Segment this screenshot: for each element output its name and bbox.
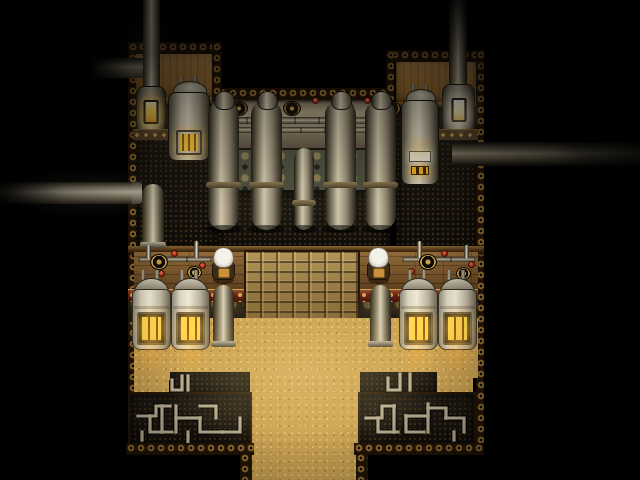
rivet-row-bottom-left — [126, 443, 254, 455]
valve-bench-left-3[interactable] — [199, 262, 206, 269]
distill-column-1 — [208, 100, 239, 230]
b-grill — [142, 317, 161, 340]
steam-pipe-exterior-right — [452, 142, 640, 166]
b-grill — [409, 317, 428, 340]
b-band — [401, 306, 436, 309]
capsule-under-tank-left — [142, 184, 164, 248]
boiler-3[interactable] — [399, 270, 438, 352]
b-band — [440, 306, 475, 309]
floor-pipe-left — [213, 285, 234, 347]
distill-column-3 — [325, 100, 356, 230]
furnace-top-left[interactable] — [136, 86, 166, 140]
boiler-fire-window — [404, 312, 433, 345]
pipe-rail-upper — [222, 117, 386, 124]
tank-top-left[interactable] — [168, 76, 210, 164]
bench-pipe-left-v2 — [194, 241, 199, 258]
furn-base — [133, 129, 169, 140]
npc-front — [218, 268, 230, 278]
steam-pipe-stub-top-left — [90, 58, 148, 78]
rivet-col-corridor-right — [356, 453, 368, 480]
boiler-4[interactable] — [438, 270, 477, 352]
col-head — [257, 91, 278, 110]
rivet-row-bottom-right — [354, 443, 484, 455]
b-band — [134, 306, 169, 309]
burner-left-1[interactable] — [150, 254, 168, 270]
valve-bench-right-1[interactable] — [441, 250, 448, 257]
burner-right-1[interactable] — [419, 254, 437, 270]
b-grill — [181, 317, 200, 340]
rivet-top-right-block — [390, 50, 484, 62]
col-head — [331, 91, 352, 110]
tank-amber-window — [176, 130, 203, 155]
tank-indicator-panel — [409, 151, 430, 162]
npc-worker-right[interactable] — [365, 247, 392, 284]
steam-pipe-exterior-left — [0, 182, 142, 204]
furn-base — [439, 129, 478, 140]
tank-indicator-lights — [411, 166, 429, 175]
col-head — [371, 91, 392, 110]
col-ring — [249, 182, 284, 188]
valve-bench-left-1[interactable] — [171, 250, 178, 257]
bench-pipe-left-v1 — [146, 245, 151, 259]
b-grill — [448, 317, 467, 340]
distill-column-short — [294, 148, 314, 230]
npc-worker-left[interactable] — [210, 247, 237, 284]
valve-wall-2[interactable] — [312, 97, 319, 104]
col-ring — [323, 182, 358, 188]
sand-corridor-bottom[interactable] — [248, 375, 360, 480]
boiler-fire-window — [137, 312, 166, 345]
crate-grid — [244, 250, 360, 323]
floor-pipe-right — [370, 285, 391, 347]
gauge-2[interactable] — [283, 101, 301, 116]
boiler-fire-window — [176, 312, 205, 345]
bench-pipe-right-v1 — [464, 245, 469, 259]
distill-column-4 — [365, 100, 396, 230]
game-viewport[interactable] — [0, 0, 640, 480]
boiler-fire-window — [443, 312, 472, 345]
col-head — [214, 91, 235, 110]
npc-white-cap — [368, 247, 389, 268]
b-band — [173, 306, 208, 309]
npc-white-cap — [213, 247, 234, 268]
col-ring — [363, 182, 398, 188]
steam-pipe-vertical-top-left — [143, 0, 160, 96]
col-ring — [292, 200, 316, 206]
furnace-fire-window — [451, 98, 466, 122]
boiler-1[interactable] — [132, 270, 171, 352]
npc-front — [373, 268, 385, 278]
boiler-2[interactable] — [171, 270, 210, 352]
rivet-col-corridor-left — [240, 453, 252, 480]
furnace-top-right[interactable] — [442, 84, 475, 140]
valve-bench-right-3[interactable] — [468, 261, 475, 268]
tank-top-right[interactable] — [401, 84, 439, 188]
distill-column-2 — [251, 100, 282, 230]
furnace-fire-window — [144, 100, 159, 124]
col-ring — [206, 182, 241, 188]
